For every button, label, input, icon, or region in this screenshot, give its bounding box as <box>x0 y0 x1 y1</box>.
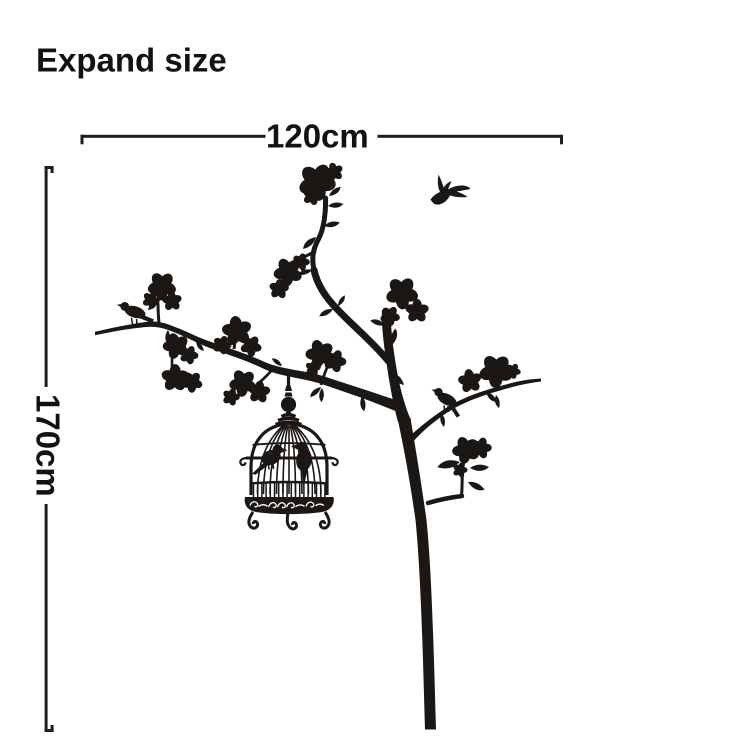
svg-text:Expand size: Expand size <box>36 42 227 79</box>
svg-text:120cm: 120cm <box>266 118 369 155</box>
svg-text:170cm: 170cm <box>30 394 67 497</box>
